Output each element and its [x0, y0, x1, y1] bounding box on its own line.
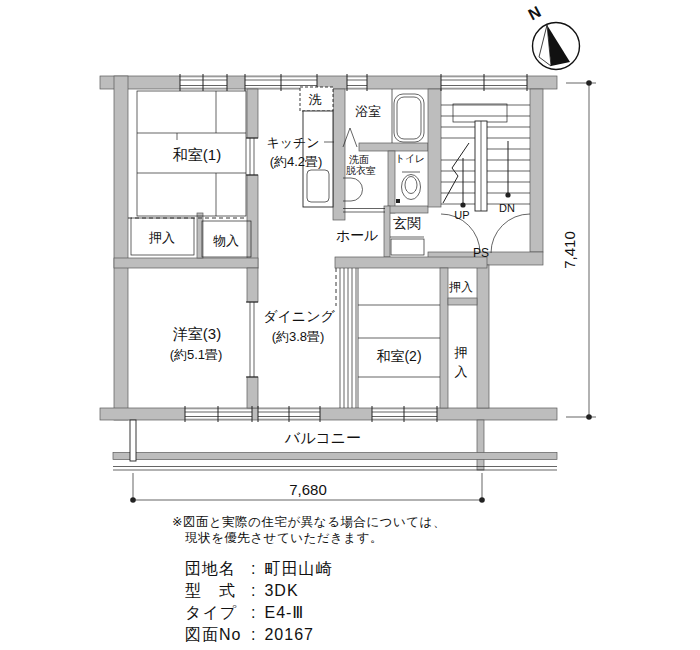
- info-label: 型 式: [185, 580, 249, 602]
- ps-label: PS: [473, 246, 489, 260]
- wall-closet-south: [114, 258, 258, 268]
- dining-label: ダイニング: [263, 308, 335, 324]
- oshiire2b-label-2: 入: [455, 364, 468, 379]
- stairs-dn-label: DN: [499, 202, 515, 214]
- washroom-label-2: 脱衣室: [346, 165, 376, 176]
- kitchen-size-label: (約4.2畳): [270, 154, 323, 169]
- wall-genkan-west: [384, 206, 390, 257]
- wall-left: [114, 76, 128, 420]
- shoe-cabinet: [391, 239, 424, 255]
- wall-unit-right: [477, 265, 489, 408]
- washroom-fixtures: [343, 178, 385, 212]
- disclaimer-note: ※図面と実際の住宅が異なる場合については、 現状を優先させていただきます。: [172, 514, 446, 546]
- floor-plan-page: 7,410 7,680 N 和室(1) キッチン (約4.2畳) 洗 浴室 洗面…: [0, 0, 700, 650]
- genkan-fixtures: [390, 237, 424, 255]
- yoshitsu3-size-label: (約5.1畳): [170, 347, 223, 362]
- oshiire1-label: 押入: [148, 230, 175, 245]
- info-colon: :: [251, 580, 256, 602]
- door-arc: [491, 214, 530, 253]
- wall-bath-south: [359, 143, 428, 151]
- wall-stair-right: [530, 89, 543, 252]
- hall-label: ホール: [336, 227, 379, 243]
- monoire-label: 物入: [213, 233, 239, 248]
- laundry-label: 洗: [309, 92, 322, 107]
- yoshitsu3-label: 洋室(3): [173, 325, 221, 342]
- toilet-label: トイレ: [395, 153, 426, 164]
- wall-oshiire-divider: [448, 298, 477, 305]
- bathtub-icon: [394, 94, 424, 142]
- washroom-label-1: 洗面: [349, 154, 369, 165]
- disclaimer-line-2: 現状を優先させていただきます。: [172, 530, 446, 546]
- wall-washitsu2-east: [440, 268, 448, 408]
- info-value: 3DK: [264, 582, 298, 599]
- bath-label: 浴室: [355, 104, 381, 119]
- info-row-danchi: 団地名:町田山崎: [185, 558, 332, 580]
- wall-bottom: [100, 408, 557, 420]
- staircase: [441, 104, 530, 253]
- wall-stair-west: [428, 89, 441, 207]
- info-label: タイプ: [185, 602, 249, 624]
- stairs-up-label: UP: [454, 209, 469, 221]
- toilet-fixtures: [396, 172, 421, 203]
- dimension-width-label: 7,680: [289, 481, 327, 498]
- balcony-label: バルコニー: [284, 429, 361, 446]
- plan-info-block: 団地名:町田山崎 型 式:3DK タイプ:E4-Ⅲ 図面No:20167: [185, 558, 332, 646]
- disclaimer-line-1: ※図面と実際の住宅が異なる場合については、: [172, 514, 446, 530]
- info-value: 20167: [264, 626, 314, 643]
- washitsu2-tatami: [358, 305, 440, 377]
- wall-yoshitsu-east-a: [247, 268, 258, 302]
- north-label: N: [525, 3, 543, 23]
- info-label: 団地名: [185, 558, 249, 580]
- info-row-zumen-no: 図面No:20167: [185, 624, 332, 646]
- stair-break-line: [443, 143, 469, 203]
- balcony-rail: [113, 453, 557, 460]
- dimension-width: 7,680: [130, 473, 485, 503]
- dining-size-label: (約3.8畳): [272, 329, 325, 344]
- compass-icon: N: [525, 3, 579, 70]
- info-row-taipu: タイプ:E4-Ⅲ: [185, 602, 332, 624]
- wall-bath-west: [333, 89, 345, 220]
- wall-kitchen-west-a: [247, 89, 258, 138]
- washitsu2-label: 和室(2): [376, 348, 421, 364]
- oshiire2b-label-1: 押: [454, 345, 468, 360]
- washitsu1-label: 和室(1): [173, 146, 221, 163]
- wall-genkan-north: [388, 206, 428, 213]
- balcony-divider: [477, 420, 484, 470]
- floor-plan-drawing: 7,410 7,680 N 和室(1) キッチン (約4.2畳) 洗 浴室 洗面…: [0, 0, 700, 520]
- genkan-label: 玄関: [393, 215, 421, 231]
- balcony-post: [130, 420, 136, 461]
- wall-hall-south: [335, 257, 487, 268]
- toilet-icon: [402, 175, 421, 200]
- info-row-type: 型 式:3DK: [185, 580, 332, 602]
- info-colon: :: [251, 624, 256, 646]
- wall-kitchen-west-b: [247, 175, 258, 268]
- wall-yoshitsu-east-b: [247, 377, 258, 408]
- info-value: 町田山崎: [264, 560, 332, 577]
- dimension-height: 7,410: [561, 80, 596, 420]
- dimension-height-label: 7,410: [561, 231, 578, 269]
- info-colon: :: [251, 558, 256, 580]
- kitchen-label: キッチン: [266, 135, 319, 150]
- oshiire2a-label: 押入: [448, 280, 473, 294]
- info-colon: :: [251, 602, 256, 624]
- info-value: E4-Ⅲ: [264, 604, 304, 621]
- washbasin-icon: [343, 178, 363, 201]
- info-label: 図面No: [185, 624, 249, 646]
